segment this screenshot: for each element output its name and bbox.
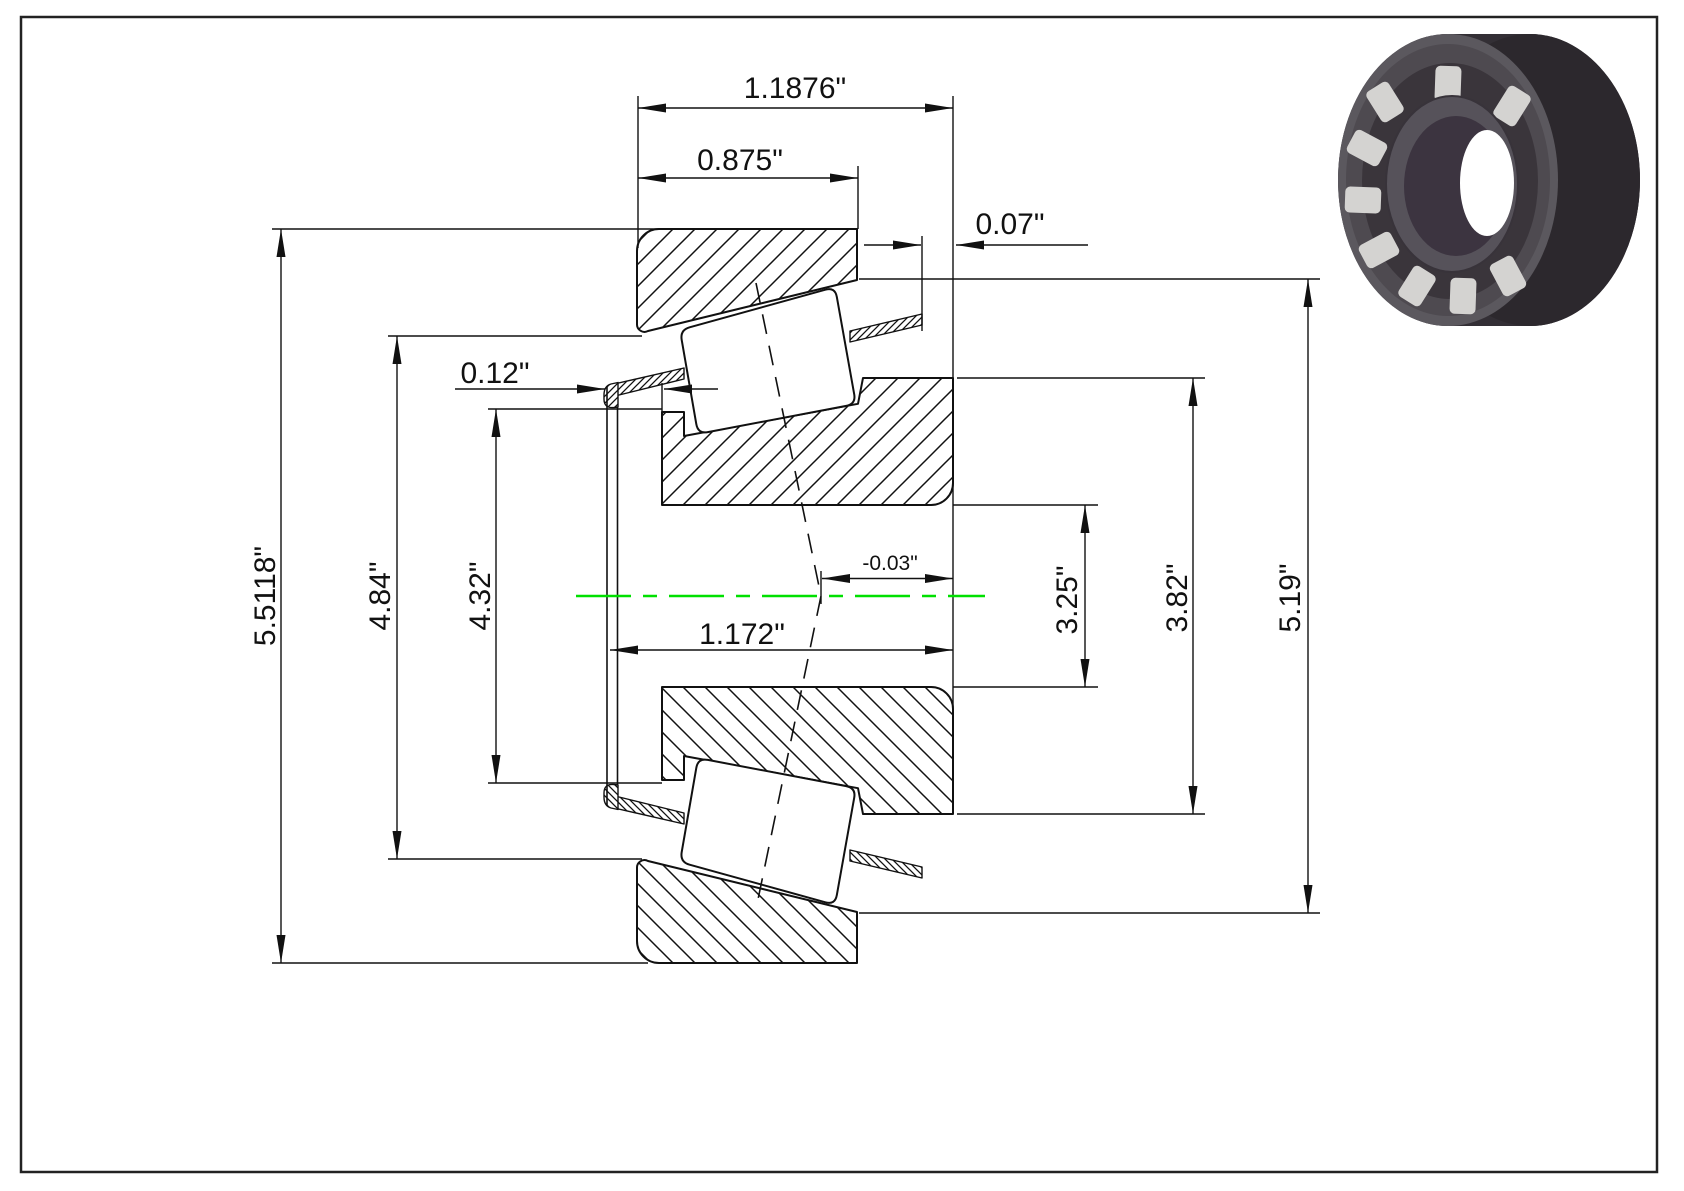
dim-label-effective-center: -0.03" <box>862 552 917 575</box>
dim-label-race-large-diameter: 5.19" <box>1274 563 1307 632</box>
dim-label-bore-diameter: 3.25" <box>1051 565 1084 634</box>
bearing-section-bottom-half <box>604 687 953 963</box>
dim-label-cage-back-protrusion: 0.07" <box>975 208 1044 241</box>
dim-label-cup-race-small-diameter: 4.84" <box>364 561 397 630</box>
dim-label-overall-width: 1.1876" <box>744 72 846 105</box>
bearing-dimension-drawing: 1.1876" 0.875" 0.07" 0.12" -0.03" 1.172"… <box>0 0 1684 1191</box>
cage-strip-back <box>850 314 922 342</box>
dim-label-cup-outer-diameter: 5.5118" <box>249 546 282 646</box>
cage-front-lip <box>604 383 618 408</box>
bearing-3d-through-hole <box>1460 130 1514 236</box>
dim-label-cage-front-protrusion: 0.12" <box>460 357 529 390</box>
dim-label-cup-width: 0.875" <box>697 144 783 177</box>
dim-label-cone-back-rib-diameter: 3.82" <box>1161 563 1194 632</box>
bearing-section-top-half <box>604 229 953 505</box>
cage-strip-front <box>612 368 684 396</box>
dim-label-cone-front-rib-diameter: 4.32" <box>464 561 497 630</box>
bearing-dimension-drawing-page: 1.1876" 0.875" 0.07" 0.12" -0.03" 1.172"… <box>0 0 1684 1191</box>
dim-label-cage-overall-width: 1.172" <box>699 618 785 651</box>
bearing-3d-render <box>1338 34 1640 326</box>
